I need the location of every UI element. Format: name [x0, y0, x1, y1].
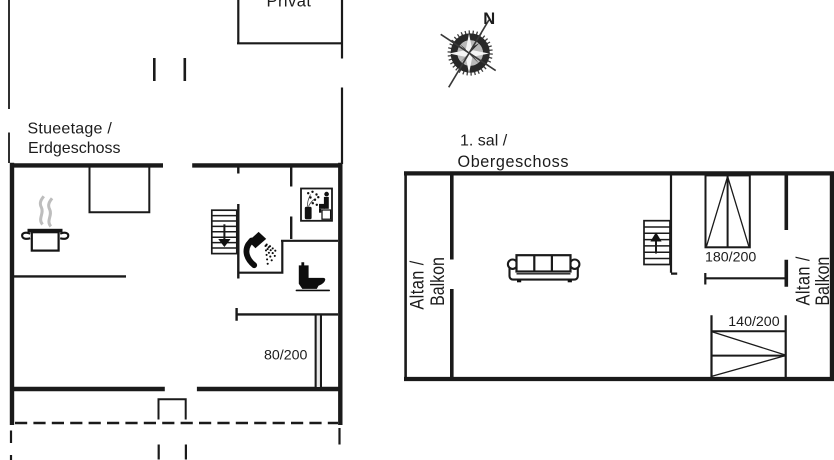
svg-text:1. sal /: 1. sal /	[460, 132, 508, 149]
svg-text:180/200: 180/200	[705, 250, 756, 266]
svg-text:140/200: 140/200	[728, 314, 779, 330]
svg-text:Erdgeschoss: Erdgeschoss	[28, 140, 121, 157]
svg-text:Stueetage /: Stueetage /	[28, 121, 113, 138]
svg-text:Balkon: Balkon	[427, 257, 449, 306]
svg-text:Obergeschoss: Obergeschoss	[458, 153, 570, 171]
svg-text:Altan /: Altan /	[406, 260, 428, 309]
svg-text:Privat: Privat	[267, 0, 312, 10]
svg-text:Balkon: Balkon	[812, 257, 834, 306]
svg-text:Altan /: Altan /	[792, 256, 814, 305]
svg-text:80/200: 80/200	[264, 347, 308, 363]
svg-text:N: N	[483, 10, 495, 28]
